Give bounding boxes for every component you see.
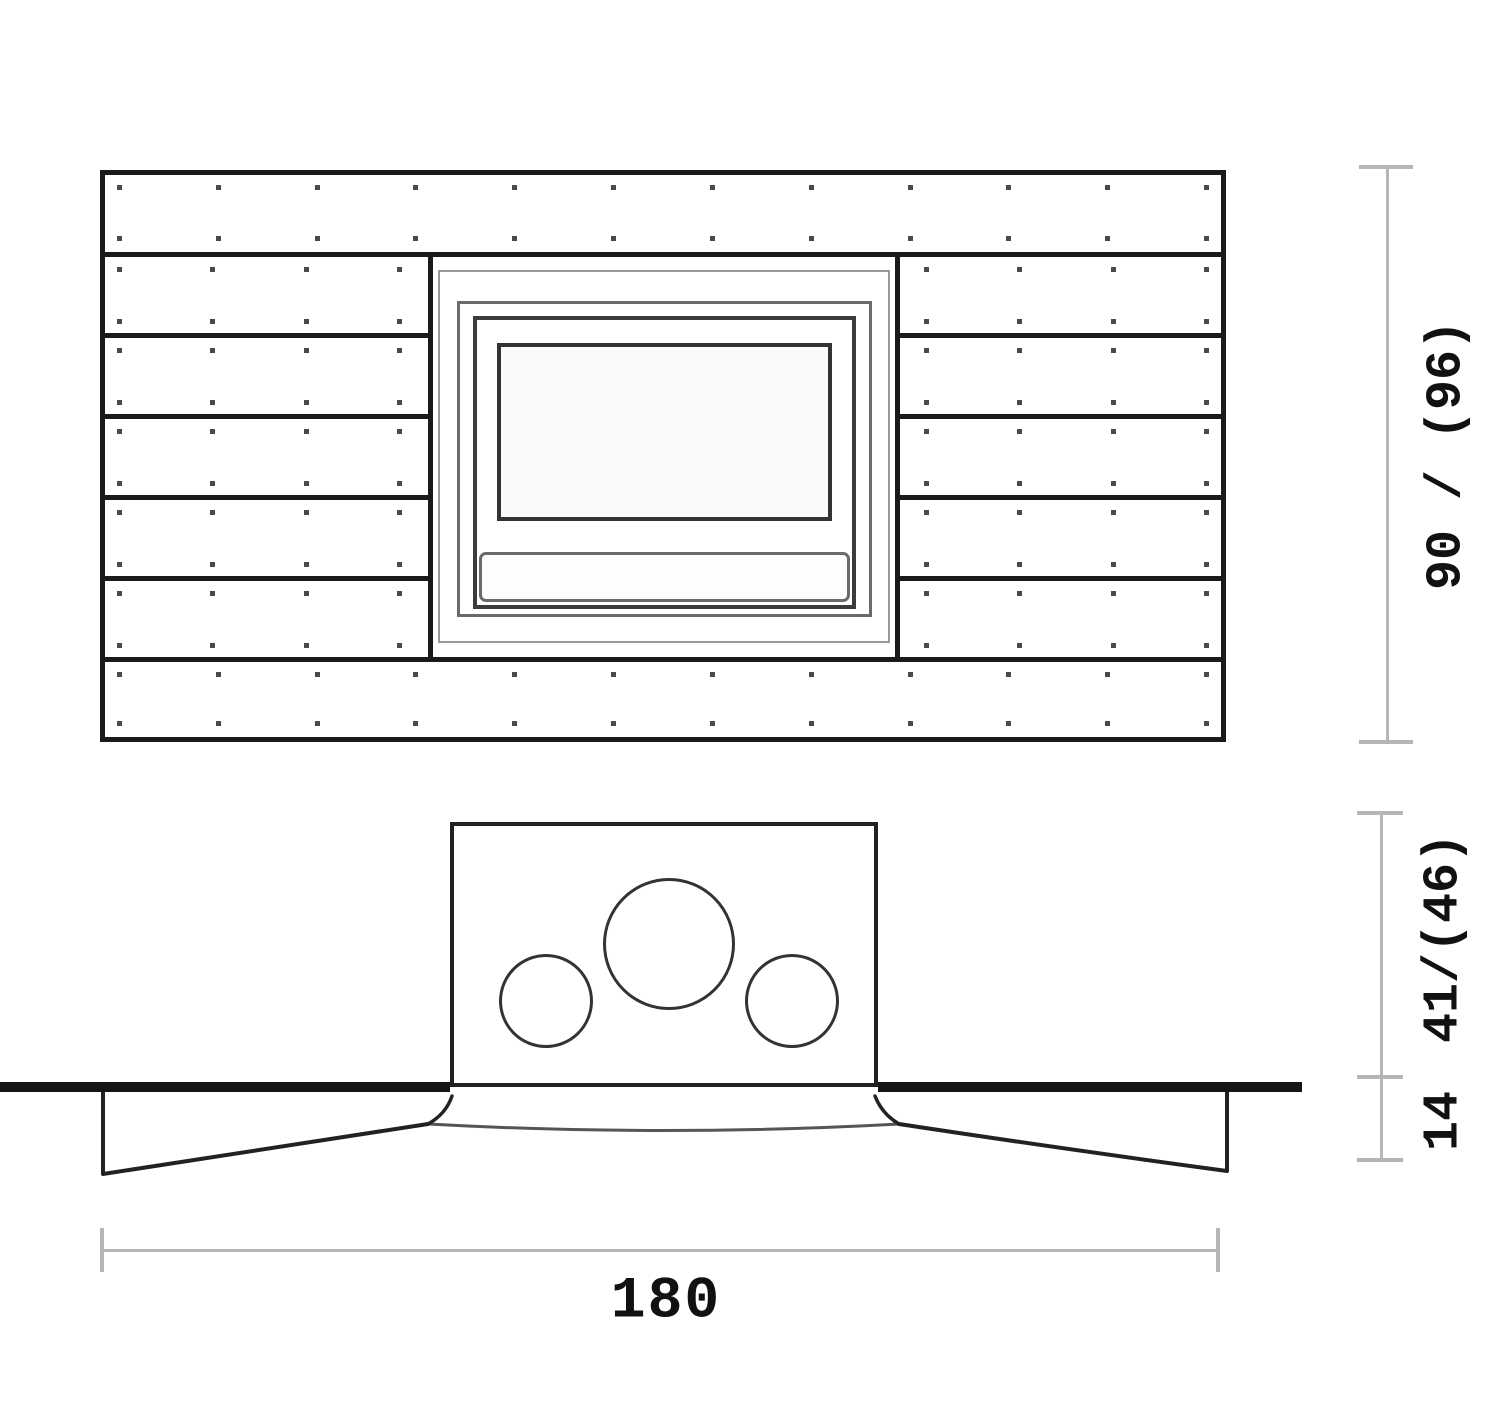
fastener-dot (924, 591, 929, 596)
fastener-dot (1204, 185, 1209, 190)
fastener-dot (1017, 510, 1022, 515)
fastener-dot (1006, 721, 1011, 726)
fastener-dot (611, 672, 616, 677)
fastener-dot-row (924, 643, 1209, 648)
fastener-dot (117, 481, 122, 486)
fastener-dot-row (924, 267, 1209, 272)
fastener-dot (117, 400, 122, 405)
fastener-dot (216, 672, 221, 677)
fastener-dot (1111, 400, 1116, 405)
fastener-dot (397, 429, 402, 434)
fastener-dot (304, 481, 309, 486)
fastener-dot-row (924, 348, 1209, 353)
fastener-dot (1006, 185, 1011, 190)
fastener-dot (1111, 562, 1116, 567)
fastener-dot (1105, 185, 1110, 190)
fastener-dot (304, 562, 309, 567)
fastener-dot (1017, 562, 1022, 567)
fastener-dot (1017, 643, 1022, 648)
duct-circle-right (745, 954, 839, 1048)
fastener-dot (210, 348, 215, 353)
duct-circle-left (499, 954, 593, 1048)
fastener-dot (1111, 591, 1116, 596)
plank-column-right (900, 257, 1221, 657)
fastener-dot (413, 236, 418, 241)
plank (900, 257, 1221, 333)
fastener-dot (397, 562, 402, 567)
fastener-dot-row (924, 319, 1209, 324)
fastener-dot (1017, 319, 1022, 324)
fastener-dot (1204, 672, 1209, 677)
dim-height-line (1386, 167, 1389, 742)
fastener-dot (1105, 236, 1110, 241)
dim-height-label: 90 / (96) (1419, 320, 1476, 590)
fastener-dot (1111, 429, 1116, 434)
fastener-dot (210, 319, 215, 324)
fastener-dot-row (117, 319, 402, 324)
fastener-dot (611, 236, 616, 241)
fastener-dot (1204, 643, 1209, 648)
fastener-dot (216, 185, 221, 190)
fastener-dot (710, 672, 715, 677)
fastener-dot (216, 721, 221, 726)
fastener-dot (512, 672, 517, 677)
fastener-dot (304, 348, 309, 353)
fastener-dot (924, 481, 929, 486)
fastener-dot-row (924, 591, 1209, 596)
fastener-dot (1017, 348, 1022, 353)
fastener-dot (210, 591, 215, 596)
ceiling-line-right (878, 1082, 1302, 1092)
fastener-dot (908, 185, 913, 190)
fastener-dot (117, 236, 122, 241)
fastener-dot-row (924, 481, 1209, 486)
plank (900, 495, 1221, 576)
dim-width-line (102, 1249, 1218, 1252)
fastener-dot (304, 510, 309, 515)
fastener-dot (1017, 429, 1022, 434)
fastener-dot (397, 267, 402, 272)
plank (105, 576, 428, 657)
fastener-dot (1105, 672, 1110, 677)
fastener-dot (512, 236, 517, 241)
plenum-box (450, 822, 878, 1087)
fastener-dot-row (117, 562, 402, 567)
dim-depth-line (1380, 813, 1383, 1160)
fastener-dot (210, 267, 215, 272)
fastener-dot (117, 185, 122, 190)
fastener-dot-row (117, 267, 402, 272)
fastener-dot-row (924, 429, 1209, 434)
fastener-dot (908, 721, 913, 726)
fastener-dot (397, 400, 402, 405)
fastener-dot (1204, 481, 1209, 486)
fastener-dot (397, 643, 402, 648)
fastener-dot (117, 429, 122, 434)
fastener-dot (117, 319, 122, 324)
fastener-dot (397, 591, 402, 596)
dim-width-tick-left (100, 1228, 104, 1272)
fastener-dot (210, 562, 215, 567)
fastener-dot (512, 185, 517, 190)
dim-depth-tick-middle (1357, 1075, 1403, 1079)
plank (105, 495, 428, 576)
fastener-dot (710, 236, 715, 241)
fastener-dot (1017, 267, 1022, 272)
fastener-dot-row (924, 400, 1209, 405)
fastener-dot-row (117, 591, 402, 596)
fastener-dot (117, 643, 122, 648)
fastener-dot (710, 721, 715, 726)
fastener-dot (304, 643, 309, 648)
fastener-dot (1105, 721, 1110, 726)
front-middle-row (105, 252, 1221, 657)
fastener-dot (1111, 267, 1116, 272)
fastener-dot (1204, 400, 1209, 405)
fastener-dot (117, 267, 122, 272)
fastener-dot (315, 185, 320, 190)
duct-circle-center (603, 878, 735, 1010)
fastener-dot (1204, 429, 1209, 434)
dim-depth-tick-top (1357, 811, 1403, 815)
fastener-dot (809, 721, 814, 726)
insert-inner-frame (473, 316, 856, 609)
fastener-dot (210, 643, 215, 648)
ceiling-line-left (0, 1082, 450, 1092)
fastener-dot (1204, 267, 1209, 272)
dim-width-tick-right (1216, 1228, 1220, 1272)
dim-depth-upper-label: 41/(46) (1416, 833, 1473, 1043)
fastener-dot-row (924, 510, 1209, 515)
fastener-dot-row (117, 481, 402, 486)
fastener-dot (1006, 672, 1011, 677)
fastener-dot (304, 267, 309, 272)
fastener-dot-row (924, 562, 1209, 567)
fastener-dot (611, 185, 616, 190)
fastener-dot (924, 510, 929, 515)
fireplace-insert (428, 257, 900, 657)
fastener-dot (611, 721, 616, 726)
fastener-dot (710, 185, 715, 190)
fastener-dot-row (117, 185, 1209, 190)
plank (105, 333, 428, 414)
fastener-dot (210, 481, 215, 486)
plank-band-top (105, 175, 1221, 252)
fastener-dot (809, 185, 814, 190)
fastener-dot-row (117, 348, 402, 353)
front-elevation-view (100, 170, 1226, 742)
plank (900, 576, 1221, 657)
fastener-dot-row (117, 236, 1209, 241)
fastener-dot (315, 672, 320, 677)
fastener-dot (924, 267, 929, 272)
fastener-dot (1204, 236, 1209, 241)
fastener-dot (210, 400, 215, 405)
plank (105, 257, 428, 333)
fastener-dot (924, 400, 929, 405)
fastener-dot (413, 672, 418, 677)
insert-glass-window (497, 343, 832, 521)
plank (105, 414, 428, 495)
fastener-dot (315, 721, 320, 726)
fastener-dot (1204, 591, 1209, 596)
fastener-dot-row (117, 510, 402, 515)
fastener-dot (117, 562, 122, 567)
fastener-dot (809, 672, 814, 677)
fastener-dot (1017, 591, 1022, 596)
fastener-dot (924, 319, 929, 324)
fastener-dot (117, 510, 122, 515)
fastener-dot (210, 429, 215, 434)
fastener-dot (304, 319, 309, 324)
fastener-dot (1006, 236, 1011, 241)
fastener-dot (397, 510, 402, 515)
fastener-dot (304, 429, 309, 434)
fastener-dot (1204, 319, 1209, 324)
fastener-dot (397, 319, 402, 324)
fastener-dot (1111, 319, 1116, 324)
insert-vent-bar (479, 552, 850, 602)
fastener-dot (397, 481, 402, 486)
fastener-dot (117, 591, 122, 596)
fastener-dot (924, 562, 929, 567)
fastener-dot (1111, 643, 1116, 648)
fastener-dot-row (117, 429, 402, 434)
fastener-dot (304, 400, 309, 405)
plank-band-bottom (105, 657, 1221, 737)
fastener-dot (1017, 481, 1022, 486)
fastener-dot (1204, 721, 1209, 726)
fastener-dot (413, 185, 418, 190)
fastener-dot (210, 510, 215, 515)
fastener-dot-row (117, 400, 402, 405)
fastener-dot (216, 236, 221, 241)
fastener-dot (924, 643, 929, 648)
fastener-dot-row (117, 672, 1209, 677)
technical-drawing-canvas: 90 / (96) 41/(46) 14 180 (0, 0, 1500, 1427)
fastener-dot (117, 348, 122, 353)
dim-depth-tick-bottom (1357, 1158, 1403, 1162)
fastener-dot (397, 348, 402, 353)
fastener-dot (117, 721, 122, 726)
fastener-dot (1204, 348, 1209, 353)
dim-width-label: 180 (611, 1270, 721, 1335)
fastener-dot (1017, 400, 1022, 405)
plank (900, 414, 1221, 495)
fastener-dot-row (117, 721, 1209, 726)
plank (900, 333, 1221, 414)
fastener-dot (1111, 348, 1116, 353)
dim-height-tick-top (1359, 165, 1413, 169)
fastener-dot (809, 236, 814, 241)
fastener-dot (1111, 510, 1116, 515)
fastener-dot (1111, 481, 1116, 486)
fastener-dot-row (117, 643, 402, 648)
plank-column-left (105, 257, 428, 657)
fastener-dot (908, 236, 913, 241)
fastener-dot (304, 591, 309, 596)
fastener-dot (924, 429, 929, 434)
fastener-dot (315, 236, 320, 241)
fastener-dot (1204, 562, 1209, 567)
dim-depth-lower-label: 14 (1416, 1091, 1473, 1151)
fastener-dot (413, 721, 418, 726)
dim-height-tick-bottom (1359, 740, 1413, 744)
fastener-dot (924, 348, 929, 353)
fastener-dot (512, 721, 517, 726)
fastener-dot (908, 672, 913, 677)
fastener-dot (1204, 510, 1209, 515)
fastener-dot (117, 672, 122, 677)
